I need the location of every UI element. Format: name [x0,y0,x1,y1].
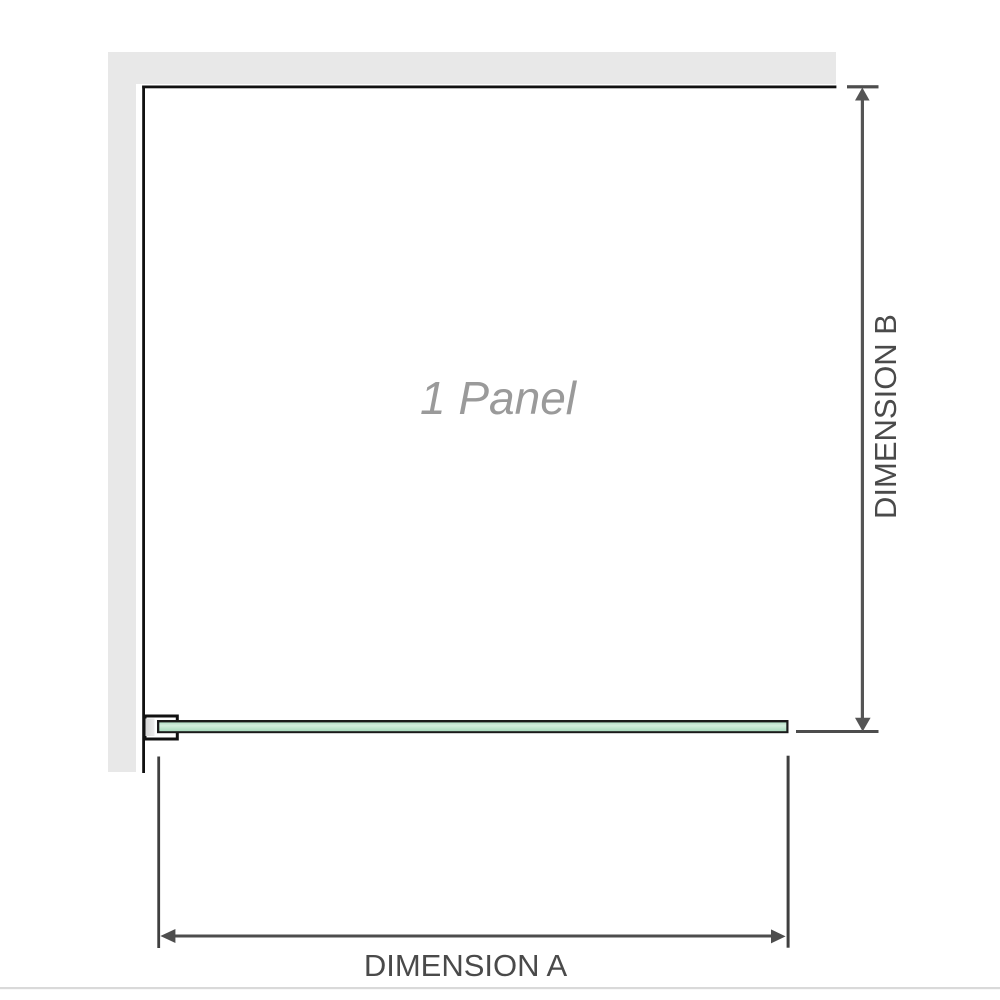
svg-text:DIMENSION A: DIMENSION A [364,948,568,983]
svg-text:DIMENSION B: DIMENSION B [868,314,903,519]
svg-text:1 Panel: 1 Panel [420,372,578,424]
